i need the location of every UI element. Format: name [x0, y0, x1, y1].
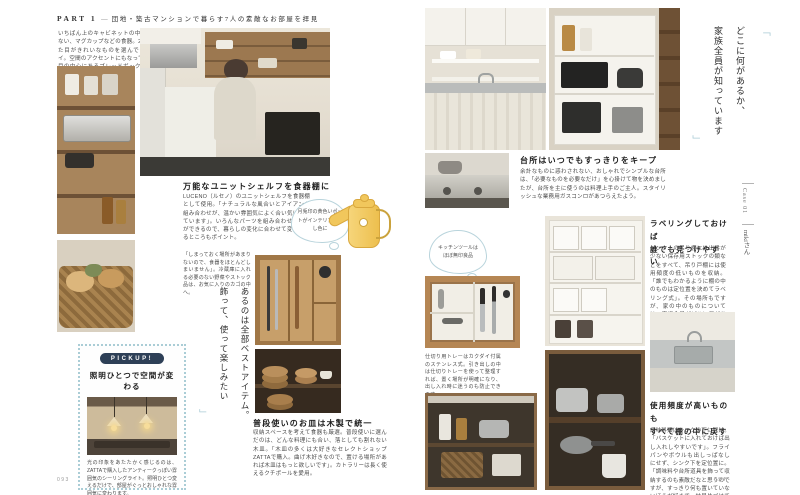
upper-cabinet-shape — [425, 8, 546, 46]
appliance-shape — [562, 102, 601, 133]
cup-shape — [320, 371, 332, 379]
storage-box-shape — [581, 288, 607, 312]
section-heading-tidy: 台所はいつでもすっきりをキープ — [520, 155, 657, 166]
jar-shape — [555, 320, 571, 338]
plate-stack-shape — [262, 366, 288, 378]
jar-shape — [580, 28, 592, 51]
edge-tab-rule — [742, 224, 754, 225]
stove-body-shape — [425, 175, 509, 198]
drawer-divider-shape — [312, 302, 336, 304]
kettle-knob-shape — [360, 194, 369, 202]
curtain-shape — [425, 93, 546, 150]
section-body-wood-plates: 収納スペースを考えて食器も厳選。普段使いに選んだのは、どんな料理にも合い、落とし… — [253, 429, 387, 479]
pickup-caption: 光の印象をあたたかく感じるのは、ZATTAで購入したアンティークっぽい雰囲気のシ… — [87, 460, 177, 495]
quote-close-mark: 」 — [195, 409, 209, 420]
photo-labeled-containers — [545, 216, 645, 346]
storage-box-shape — [609, 226, 635, 250]
jar-shape — [562, 25, 575, 51]
storage-box-shape — [553, 226, 579, 250]
header-title: 団地・築古マンションで暮らす7人の素敵なお部屋を拝見 — [112, 16, 319, 23]
dish-shape — [292, 38, 307, 48]
section-heading-unit-shelf: 万能なユニットシェルフを食器棚に — [183, 181, 330, 192]
bottle-shape — [102, 197, 113, 224]
photo-counter-sink — [650, 312, 735, 392]
dish-shape — [466, 49, 481, 59]
jar-shape — [65, 74, 79, 94]
pot-shape — [597, 394, 625, 414]
section-heading-wood-plates: 普段使いのお皿は木製で統一 — [253, 418, 373, 429]
photo-storage-basket — [57, 240, 135, 332]
toaster-shape — [63, 115, 131, 142]
container-shape — [492, 454, 522, 476]
jar-shape — [102, 74, 118, 94]
storage-box-shape — [553, 288, 579, 312]
knife-shape — [480, 288, 485, 333]
quote-line: 家族全員が知っています — [712, 26, 725, 146]
counter-shape — [425, 83, 546, 93]
fridge-shape — [140, 68, 166, 157]
shelf-board-shape — [549, 417, 641, 422]
quote-line: どこに何があるか、 — [734, 26, 747, 146]
counter-edge-shape — [428, 396, 534, 403]
photo-pendant-lights — [87, 397, 177, 455]
peeler-shape — [438, 289, 444, 309]
cabinet-line-shape — [505, 8, 506, 45]
heading-line: 使用頻度が高いものも — [650, 400, 732, 426]
vertical-quote-right: 「 どこに何があるか、 家族全員が知っています 」 — [688, 26, 771, 146]
microwave-shape — [561, 62, 608, 88]
pot-shape — [65, 153, 95, 168]
pan-shape — [560, 436, 593, 454]
knife-shape — [492, 286, 497, 334]
shelf-board-shape — [549, 282, 641, 284]
counter-shape — [140, 157, 330, 176]
yellow-kettle-illustration — [326, 192, 394, 256]
kettle-silhouette-shape — [438, 161, 462, 174]
faucet-shape — [687, 331, 701, 342]
section-body-restock: 調味料類はシンクの下に収納。「バスケットに入れておけば出し入れしやすいです」。フ… — [650, 427, 730, 495]
sink-basin-shape — [674, 346, 713, 364]
pickup-box: PICKUP! 照明ひとつで空間が変わる 光の印象をあたたかく感じるのは、ZAT… — [78, 344, 186, 490]
appliance-shape — [612, 107, 643, 133]
photo-knife-drawer — [425, 276, 520, 348]
dish-shape — [440, 51, 457, 60]
quote-close-mark: 」 — [688, 135, 703, 146]
page-number-left: 093 — [57, 477, 70, 483]
storage-box-shape — [553, 256, 593, 280]
pot-shape — [479, 420, 509, 438]
tile-wall-shape — [165, 87, 216, 157]
shelf-board-shape — [549, 251, 641, 253]
pickup-heading: 照明ひとつで空間が変わる — [87, 370, 177, 392]
bucket-shape — [602, 454, 626, 478]
bottle-shape — [439, 414, 452, 439]
dish-shape — [258, 58, 277, 68]
kettle-handle-shape — [376, 209, 391, 239]
wood-cabinet-shape — [659, 8, 680, 150]
edge-tab-resident-name: mikiさん — [740, 230, 750, 255]
photo-wooden-plates — [255, 349, 341, 413]
drawer-divider-shape — [288, 260, 290, 341]
plate-stack-shape — [267, 394, 293, 405]
heading-line: ラベリングしておけば — [650, 218, 728, 244]
kettle-logo-shape — [359, 218, 368, 227]
person-body-shape — [214, 77, 256, 141]
utensil-shape — [319, 266, 331, 279]
utensil-shape — [267, 266, 270, 331]
photo-appliance-shelf — [549, 8, 680, 150]
header-separator: — — [101, 16, 108, 23]
page-number-right: 094 — [714, 477, 727, 483]
jar-shape — [84, 76, 98, 94]
cabinet-front-shape — [650, 368, 735, 392]
lamp-glow-shape — [144, 423, 150, 429]
stove-knob-shape — [474, 187, 482, 195]
quote-open-mark: 「 — [756, 26, 771, 146]
photo-wood-shelf-unit — [57, 66, 135, 234]
pot-shape — [556, 388, 587, 412]
part-label: PART 1 — [57, 14, 97, 23]
shelf-board-shape — [428, 443, 534, 447]
photo-under-counter-cabinet — [425, 393, 537, 490]
section-body-tidy: 余計なものに惑わされない、おしゃれでシンプルな台所は、「必要なものを必要なだけ」… — [520, 168, 666, 201]
open-shelf-shape — [432, 59, 538, 63]
dish-shape — [216, 40, 233, 49]
storage-box-shape — [595, 256, 635, 280]
photo-kitchen-sink-top — [425, 8, 546, 150]
photo-person-in-kitchen — [140, 28, 330, 176]
plate-stack-shape — [295, 368, 317, 378]
edge-tab-case-label: Case 01 — [741, 188, 747, 214]
counter-items-shape — [94, 441, 170, 448]
bottle-shape — [456, 418, 468, 440]
storage-box-shape — [581, 226, 607, 250]
shelf-board-shape — [255, 384, 341, 388]
counter-shape — [425, 198, 509, 208]
lamp-cord-shape — [114, 397, 115, 417]
cabinet-shape — [140, 28, 201, 44]
range-hood-shape — [150, 44, 198, 68]
jar-shape — [577, 320, 593, 338]
photo-pots-cupboard — [545, 350, 645, 490]
basket-shape — [441, 452, 483, 477]
tray-divider-shape — [473, 282, 475, 342]
rice-cooker-shape — [617, 68, 643, 88]
edge-tab-rule — [742, 183, 754, 184]
drawer-divider-shape — [312, 260, 314, 341]
photo-gas-stove — [425, 153, 509, 208]
quote-line: あるのは全部ベストアイテム。 — [239, 287, 251, 420]
magazine-spread: PART 1—団地・築古マンションで暮らす7人の素敵なお部屋を拝見 いちばん上の… — [0, 0, 800, 495]
utensil-shape — [295, 266, 299, 329]
photo-cutlery-drawer — [255, 255, 341, 345]
shelf-board-shape — [554, 55, 654, 57]
tools-speech-bubble: キッチンツールは ほぼ無印良品 — [429, 230, 487, 274]
bottle-shape — [116, 200, 125, 224]
tray-divider-shape — [430, 312, 473, 314]
pickup-pill: PICKUP! — [100, 353, 165, 364]
lamp-glow-shape — [111, 425, 117, 431]
page-header: PART 1—団地・築古マンションで暮らす7人の素敵なお部屋を拝見 — [57, 8, 319, 26]
shelf-board-shape — [554, 93, 654, 95]
appliance-shape — [265, 112, 320, 155]
quote-line: 飾って、使って楽しみたい — [218, 287, 230, 420]
lamp-cord-shape — [146, 397, 147, 414]
utensil-shape — [275, 269, 278, 330]
cabinet-line-shape — [465, 8, 466, 45]
shelf-board-shape — [549, 314, 641, 316]
pan-handle-shape — [591, 441, 615, 446]
scissors-shape — [503, 290, 511, 297]
opener-shape — [442, 318, 463, 324]
